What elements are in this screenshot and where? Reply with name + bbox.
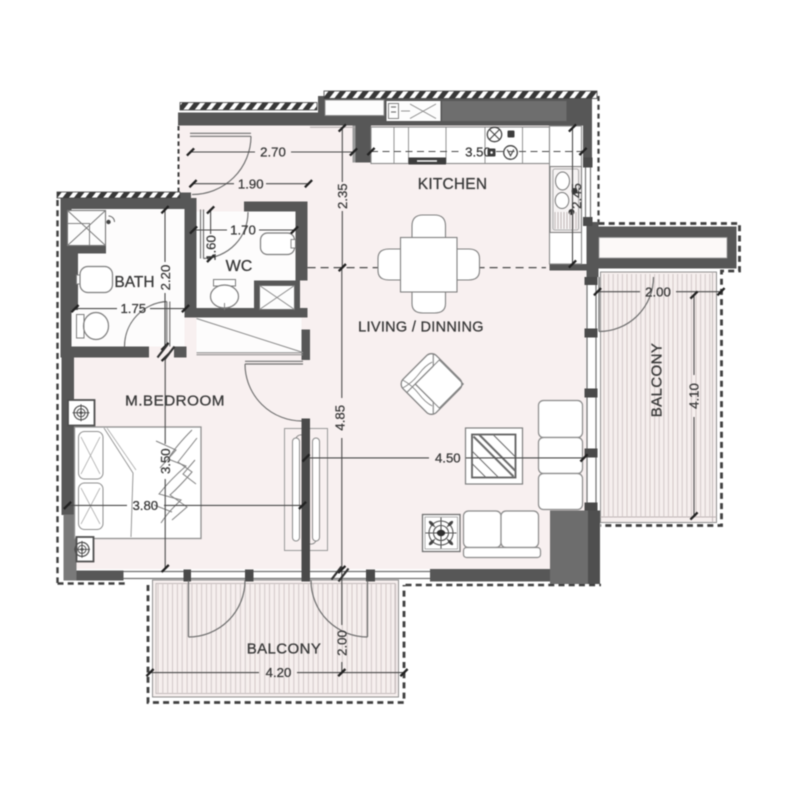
svg-text:3.50: 3.50 <box>158 448 173 474</box>
svg-text:2.70: 2.70 <box>260 145 286 160</box>
svg-text:1.75: 1.75 <box>120 301 146 316</box>
svg-text:3.50: 3.50 <box>465 144 491 159</box>
svg-text:1.70: 1.70 <box>230 223 256 238</box>
svg-text:4.85: 4.85 <box>333 405 348 431</box>
svg-text:4.50: 4.50 <box>435 451 461 466</box>
svg-text:1.90: 1.90 <box>238 177 264 192</box>
svg-text:2.20: 2.20 <box>158 265 173 291</box>
svg-text:BALCONY: BALCONY <box>247 641 322 658</box>
svg-text:M.BEDROOM: M.BEDROOM <box>125 393 225 410</box>
svg-text:BATH: BATH <box>114 274 154 291</box>
svg-text:1.60: 1.60 <box>203 235 218 261</box>
svg-text:4.10: 4.10 <box>687 383 702 409</box>
svg-text:2.00: 2.00 <box>645 284 671 299</box>
svg-text:LIVING / DINNING: LIVING / DINNING <box>358 320 484 336</box>
svg-text:BALCONY: BALCONY <box>649 343 666 418</box>
svg-text:WC: WC <box>226 258 253 275</box>
svg-text:2.35: 2.35 <box>335 183 350 209</box>
svg-text:2.45: 2.45 <box>569 183 584 209</box>
svg-text:KITCHEN: KITCHEN <box>418 176 487 193</box>
svg-text:2.00: 2.00 <box>335 630 350 656</box>
svg-text:3.80: 3.80 <box>132 498 158 513</box>
svg-text:4.20: 4.20 <box>266 665 292 680</box>
